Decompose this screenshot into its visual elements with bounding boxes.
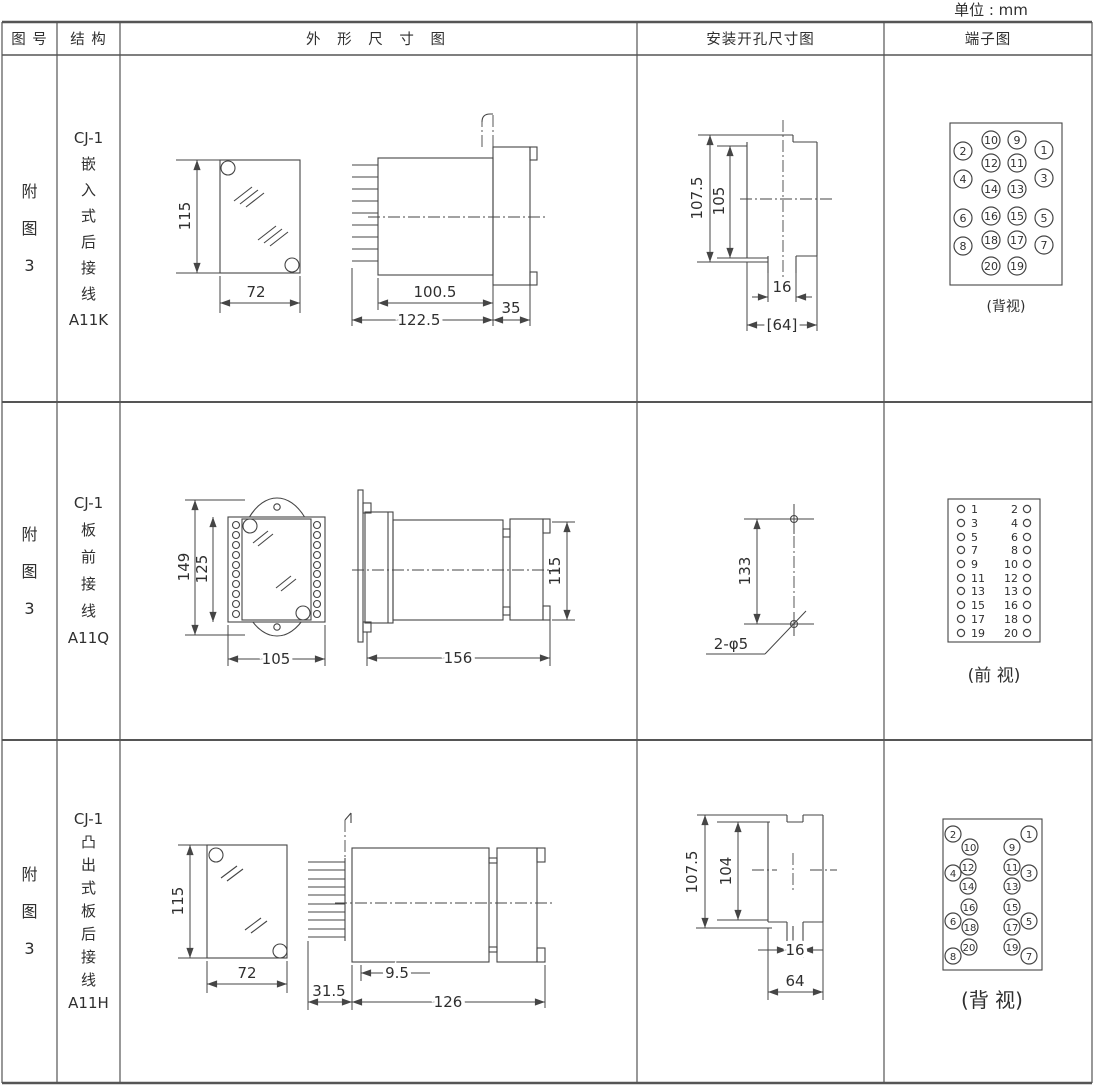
dim-row3-pins: 31.5	[312, 982, 345, 1000]
terminal-label-10: 10	[964, 843, 977, 854]
terminal-label-3: 3	[1041, 172, 1048, 185]
dim-row1-mount-outer: 107.5	[688, 177, 706, 220]
terminal-8	[1023, 546, 1030, 553]
terminal-label-4: 4	[960, 173, 967, 186]
row3-terminal-caption: (背 视)	[961, 988, 1023, 1012]
dim-row1-flange: 35	[501, 299, 520, 317]
dim-row1-mount-width: [64]	[767, 316, 798, 334]
terminal-label-20: 20	[963, 943, 976, 954]
row3-side-view: 31.5 9.5 126	[308, 813, 555, 1011]
terminal-label-13: 13	[1006, 882, 1019, 893]
terminal-label-6: 6	[950, 917, 956, 928]
terminal-label-6: 6	[960, 212, 967, 225]
terminal-5	[957, 533, 964, 540]
terminal-label-12: 12	[962, 863, 975, 874]
terminal-label-2: 2	[950, 830, 956, 841]
terminal-label-17: 17	[971, 613, 985, 626]
terminal-11	[957, 574, 964, 581]
terminal-label-12: 12	[984, 157, 998, 170]
terminal-label-19: 19	[1006, 943, 1019, 954]
row3-mounting-view: 107.5 104 16 64	[683, 815, 837, 1000]
terminal-label-16: 16	[1004, 599, 1018, 612]
terminal-label-19: 19	[971, 627, 985, 640]
terminal-label-12: 12	[1004, 572, 1018, 585]
terminal-label-11: 11	[1010, 157, 1024, 170]
dim-row3-height: 115	[169, 887, 187, 916]
dim-row1-total: 122.5	[398, 311, 441, 329]
terminal-2	[1023, 505, 1030, 512]
terminal-label-8: 8	[950, 952, 956, 963]
dim-row3-mount-slot: 16	[785, 941, 804, 959]
terminal-label-18: 18	[964, 923, 977, 934]
terminal-label-4: 4	[1011, 517, 1018, 530]
dim-row1-body: 100.5	[414, 283, 457, 301]
row2-mounting-view: 133 2-φ5	[706, 504, 814, 654]
row2-terminal-caption: (前 视)	[968, 666, 1021, 686]
table-grid	[2, 22, 1092, 1083]
row1-side-view: 100.5 122.5 35	[352, 114, 545, 329]
terminal-15	[957, 601, 964, 608]
terminal-label-6: 6	[1011, 531, 1018, 544]
terminal-label-7: 7	[1041, 239, 1048, 252]
terminal-label-10: 10	[1004, 558, 1018, 571]
terminal-label-16: 16	[984, 210, 998, 223]
dim-row1-mount-slot: 16	[772, 278, 791, 296]
dim-row2-height: 115	[546, 557, 564, 586]
dim-row3-length: 126	[434, 993, 463, 1011]
terminal-19	[957, 629, 964, 636]
terminal-label-20: 20	[984, 260, 998, 273]
terminal-12	[1023, 574, 1030, 581]
row2-terminal-diagram: 1234567891011121313151617181920 (前 视)	[948, 499, 1040, 686]
dim-row3-width: 72	[237, 964, 256, 982]
dim-row2-holes: 2-φ5	[714, 635, 748, 653]
dim-row3-mount-outer: 107.5	[683, 851, 701, 894]
terminal-label-1: 1	[1026, 830, 1032, 841]
terminal-13	[957, 587, 964, 594]
drawings-layer: 115 72 100.5 122.5 35	[0, 0, 1094, 1085]
terminal-label-15: 15	[1010, 210, 1024, 223]
terminal-label-9: 9	[971, 558, 978, 571]
terminal-13	[1023, 587, 1030, 594]
terminal-label-5: 5	[1041, 212, 1048, 225]
terminal-label-17: 17	[1006, 923, 1019, 934]
terminal-16	[1023, 601, 1030, 608]
terminal-label-5: 5	[971, 531, 978, 544]
terminal-label-9: 9	[1009, 843, 1015, 854]
terminal-7	[957, 546, 964, 553]
terminal-label-13: 13	[1004, 585, 1018, 598]
terminal-label-8: 8	[960, 240, 967, 253]
row2-side-view: 156 115	[352, 490, 575, 667]
terminal-1	[957, 505, 964, 512]
terminal-label-11: 11	[971, 572, 985, 585]
dim-row2-inner-h: 125	[193, 555, 211, 584]
row1-terminal-diagram: 1234567891011121314151617181920 (背视)	[950, 123, 1062, 315]
row3-front-view: 115 72	[169, 845, 287, 993]
terminal-label-1: 1	[1041, 144, 1048, 157]
terminal-label-16: 16	[963, 903, 976, 914]
terminal-label-14: 14	[984, 183, 998, 196]
terminal-label-9: 9	[1014, 134, 1021, 147]
terminal-label-20: 20	[1004, 627, 1018, 640]
terminal-label-7: 7	[1026, 952, 1032, 963]
dim-row2-outer-h: 149	[175, 553, 193, 582]
dim-row3-mount-inner: 104	[717, 857, 735, 886]
terminal-label-17: 17	[1010, 234, 1024, 247]
terminal-label-5: 5	[1026, 917, 1032, 928]
dim-row2-length: 156	[444, 649, 473, 667]
dim-row1-mount-inner: 105	[710, 187, 728, 216]
terminal-20	[1023, 629, 1030, 636]
dim-row2-pitch: 133	[736, 557, 754, 586]
terminal-label-2: 2	[960, 145, 967, 158]
terminal-3	[957, 519, 964, 526]
terminal-label-2: 2	[1011, 503, 1018, 516]
dim-row1-height: 115	[176, 202, 194, 231]
terminal-label-7: 7	[971, 544, 978, 557]
terminal-label-3: 3	[971, 517, 978, 530]
terminal-label-15: 15	[971, 599, 985, 612]
terminal-9	[957, 560, 964, 567]
dim-row3-plate: 9.5	[385, 964, 409, 982]
terminal-label-4: 4	[950, 869, 956, 880]
terminal-label-13: 13	[1010, 183, 1024, 196]
terminal-label-11: 11	[1006, 863, 1019, 874]
row3-terminal-diagram: 1291011123413141516561718192078 (背 视)	[943, 819, 1042, 1012]
dim-row2-width: 105	[262, 650, 291, 668]
terminal-6	[1023, 533, 1030, 540]
row1-front-view: 115 72	[176, 160, 300, 313]
dim-row3-mount-width: 64	[785, 972, 804, 990]
row1-terminal-caption: (背视)	[987, 299, 1026, 315]
terminal-18	[1023, 615, 1030, 622]
terminal-label-1: 1	[971, 503, 978, 516]
terminal-label-14: 14	[962, 882, 975, 893]
terminal-label-18: 18	[1004, 613, 1018, 626]
terminal-label-10: 10	[984, 134, 998, 147]
terminal-label-3: 3	[1026, 869, 1032, 880]
dim-row1-width: 72	[246, 283, 265, 301]
terminal-4	[1023, 519, 1030, 526]
terminal-label-13: 13	[971, 585, 985, 598]
terminal-label-15: 15	[1006, 903, 1019, 914]
terminal-label-8: 8	[1011, 544, 1018, 557]
terminal-label-19: 19	[1010, 260, 1024, 273]
row1-mounting-view: 107.5 105 16 [64]	[688, 120, 833, 334]
row2-front-view: 149 125 105	[175, 498, 325, 668]
terminal-label-18: 18	[984, 234, 998, 247]
spec-sheet-page: 单位 : mm 图 号 结 构 外 形 尺 寸 图 安装开孔尺寸图 端子图 附 …	[0, 0, 1094, 1085]
terminal-10	[1023, 560, 1030, 567]
terminal-17	[957, 615, 964, 622]
